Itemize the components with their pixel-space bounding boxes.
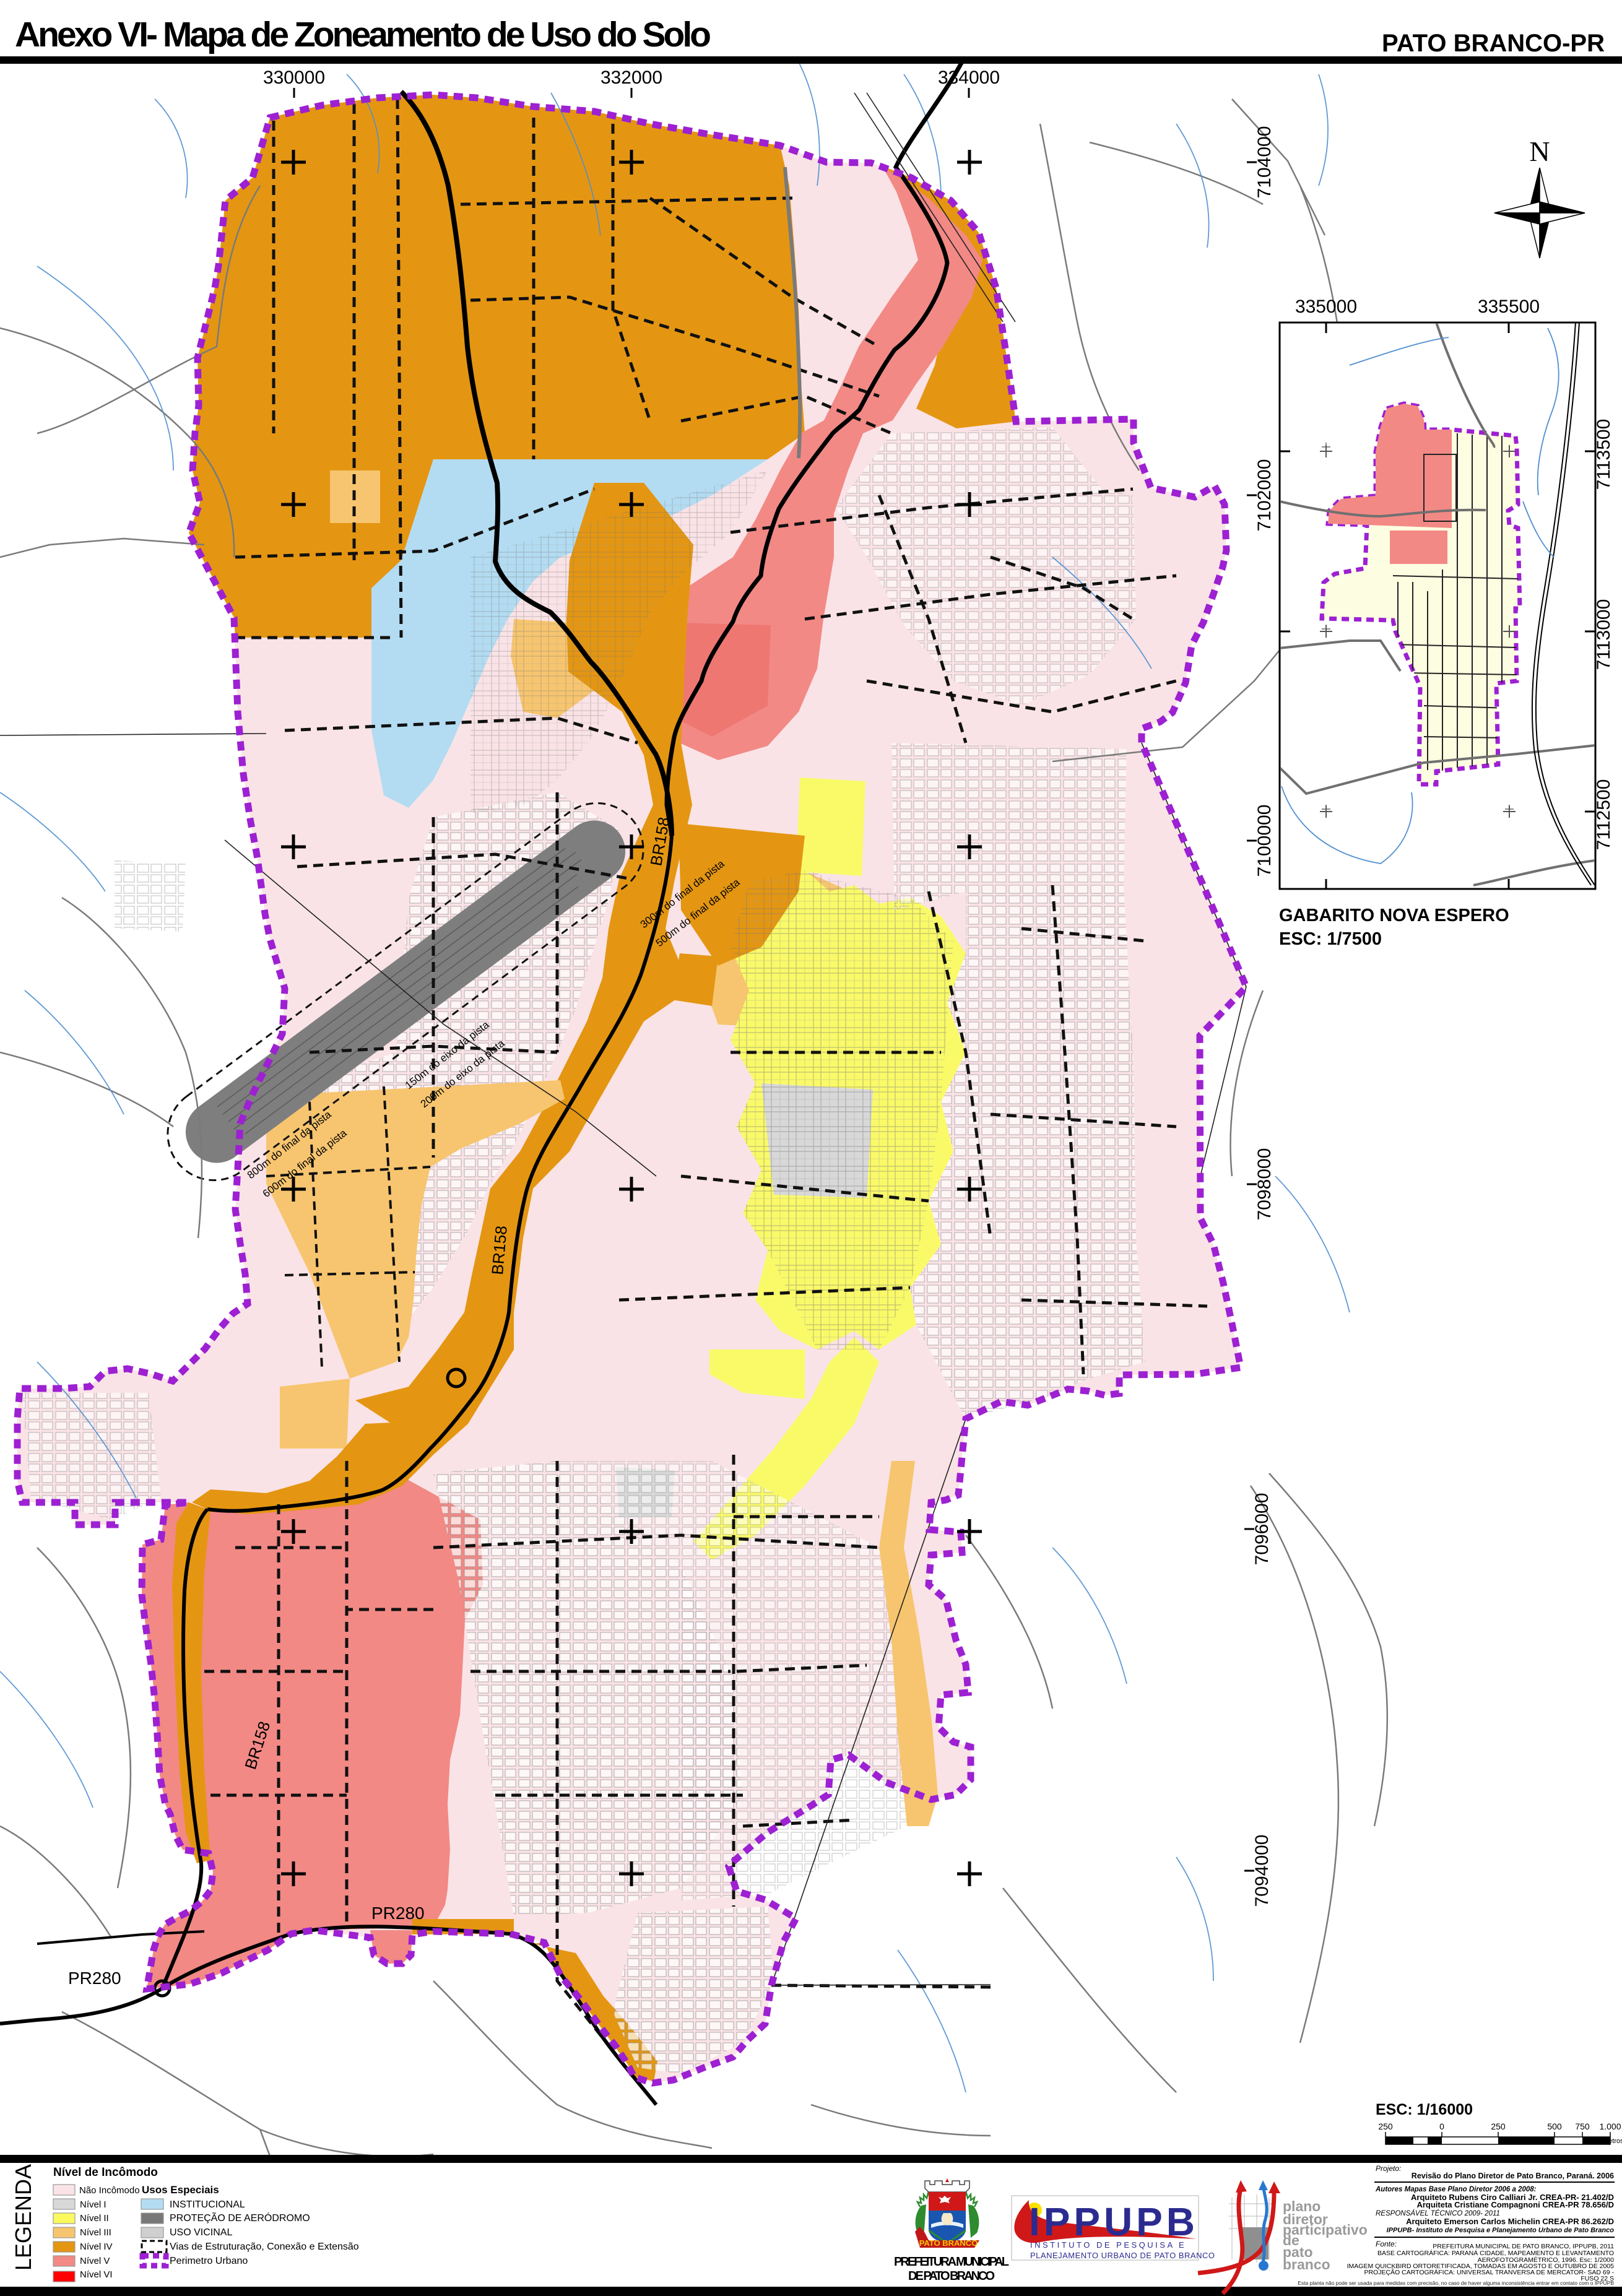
svg-text:DE PATO BRANCO: DE PATO BRANCO (908, 2269, 995, 2283)
svg-text:Nível de Incômodo: Nível de Incômodo (53, 2166, 158, 2179)
svg-text:PR280: PR280 (68, 1969, 121, 1988)
svg-text:750: 750 (1575, 2121, 1590, 2131)
svg-text:Arquiteta Cristiane Compagnoni: Arquiteta Cristiane Compagnoni CREA-PR 7… (1416, 2200, 1614, 2209)
svg-text:250: 250 (1378, 2121, 1393, 2131)
svg-text:7096000: 7096000 (1252, 1493, 1272, 1566)
svg-text:335500: 335500 (1478, 297, 1540, 317)
svg-text:Nível II: Nível II (80, 2213, 109, 2224)
svg-text:ESC: 1/7500: ESC: 1/7500 (1279, 929, 1382, 949)
svg-text:Nível I: Nível I (80, 2199, 106, 2210)
svg-text:Vias de Estruturação, Conexão: Vias de Estruturação, Conexão e Extensão (170, 2242, 359, 2252)
svg-text:Anexo VI- Mapa de Zoneamento d: Anexo VI- Mapa de Zoneamento de Uso do S… (15, 15, 711, 54)
svg-text:Não Incômodo: Não Incômodo (79, 2185, 140, 2196)
svg-text:Esta planta não pode ser usada: Esta planta não pode ser usada para medi… (1298, 2280, 1614, 2286)
svg-text:PROTEÇÃO DE AERÓDROMO: PROTEÇÃO DE AERÓDROMO (170, 2211, 310, 2224)
svg-text:IPPUPB- Instituto de Pesquisa: IPPUPB- Instituto de Pesquisa e Planejam… (1387, 2227, 1615, 2234)
svg-text:7113500: 7113500 (1594, 419, 1614, 490)
svg-text:INSTITUCIONAL: INSTITUCIONAL (170, 2199, 245, 2210)
svg-text:330000: 330000 (263, 67, 325, 88)
svg-text:Arquiteto Emerson Carlos Miche: Arquiteto Emerson Carlos Michelin CREA-P… (1406, 2217, 1614, 2226)
svg-text:N: N (1529, 136, 1550, 167)
svg-text:Fonte:: Fonte: (1376, 2240, 1397, 2248)
svg-text:335000: 335000 (1295, 297, 1357, 317)
svg-text:Revisão do Plano Diretor de Pa: Revisão do Plano Diretor de Pato Branco,… (1412, 2172, 1614, 2180)
svg-text:Usos Especiais: Usos Especiais (142, 2184, 219, 2196)
svg-text:7098000: 7098000 (1254, 1148, 1275, 1221)
svg-text:PROJEÇÃO CARTOGRÁFICA: UNIVERS: PROJEÇÃO CARTOGRÁFICA: UNIVERSAL TRANVER… (1364, 2268, 1614, 2276)
svg-text:Nível V: Nível V (80, 2256, 110, 2266)
svg-text:Perimetro Urbano: Perimetro Urbano (170, 2256, 248, 2266)
svg-text:PLANEJAMENTO URBANO DE PATO BR: PLANEJAMENTO URBANO DE PATO BRANCO (1030, 2251, 1215, 2260)
svg-text:332000: 332000 (601, 67, 662, 88)
svg-text:7112500: 7112500 (1594, 779, 1614, 851)
svg-text:Metros: Metros (1603, 2138, 1622, 2145)
svg-text:IPPUPB: IPPUPB (1029, 2199, 1195, 2244)
svg-text:500: 500 (1547, 2121, 1562, 2131)
svg-text:Nível IV: Nível IV (80, 2242, 113, 2252)
svg-text:0: 0 (1439, 2121, 1444, 2131)
svg-text:7100000: 7100000 (1254, 805, 1275, 877)
svg-text:250: 250 (1491, 2121, 1506, 2131)
svg-text:7102000: 7102000 (1254, 459, 1275, 532)
svg-text:Projeto:: Projeto: (1376, 2164, 1401, 2173)
svg-text:PR280: PR280 (371, 1904, 425, 1923)
svg-text:Nível VI: Nível VI (80, 2269, 113, 2280)
svg-text:USO VICINAL: USO VICINAL (170, 2227, 232, 2238)
svg-text:334000: 334000 (938, 67, 1000, 88)
svg-text:PATO BRANCO: PATO BRANCO (919, 2238, 978, 2248)
svg-text:7094000: 7094000 (1252, 1835, 1272, 1907)
svg-text:branco: branco (1283, 2256, 1330, 2272)
svg-text:7113000: 7113000 (1594, 599, 1614, 670)
svg-text:7104000: 7104000 (1254, 126, 1275, 199)
svg-text:PREFEITURA MUNICIPAL: PREFEITURA MUNICIPAL (894, 2255, 1009, 2269)
svg-text:PATO BRANCO-PR: PATO BRANCO-PR (1382, 30, 1605, 57)
svg-text:GABARITO NOVA ESPERO: GABARITO NOVA ESPERO (1279, 906, 1509, 925)
svg-text:LEGENDA: LEGENDA (11, 2164, 36, 2271)
svg-text:1.000: 1.000 (1599, 2121, 1621, 2131)
svg-text:INSTITUTO DE PESQUISA E: INSTITUTO DE PESQUISA E (1030, 2240, 1186, 2250)
svg-text:ESC: 1/16000: ESC: 1/16000 (1376, 2101, 1473, 2118)
svg-text:Nível III: Nível III (80, 2227, 111, 2238)
